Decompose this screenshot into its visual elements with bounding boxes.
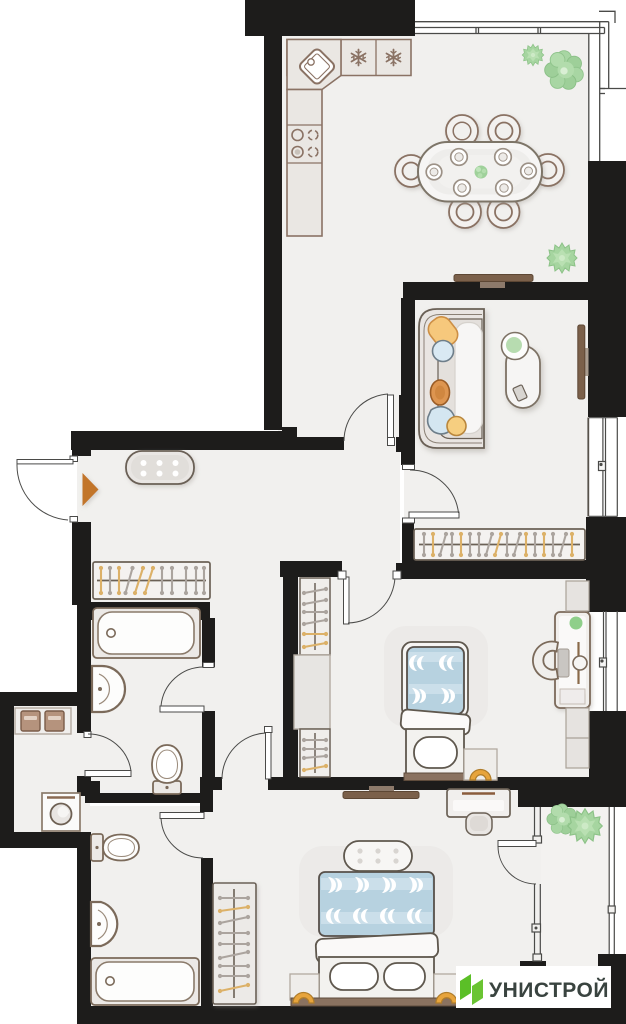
svg-text:УНИСТРОЙ: УНИСТРОЙ	[489, 978, 609, 1002]
